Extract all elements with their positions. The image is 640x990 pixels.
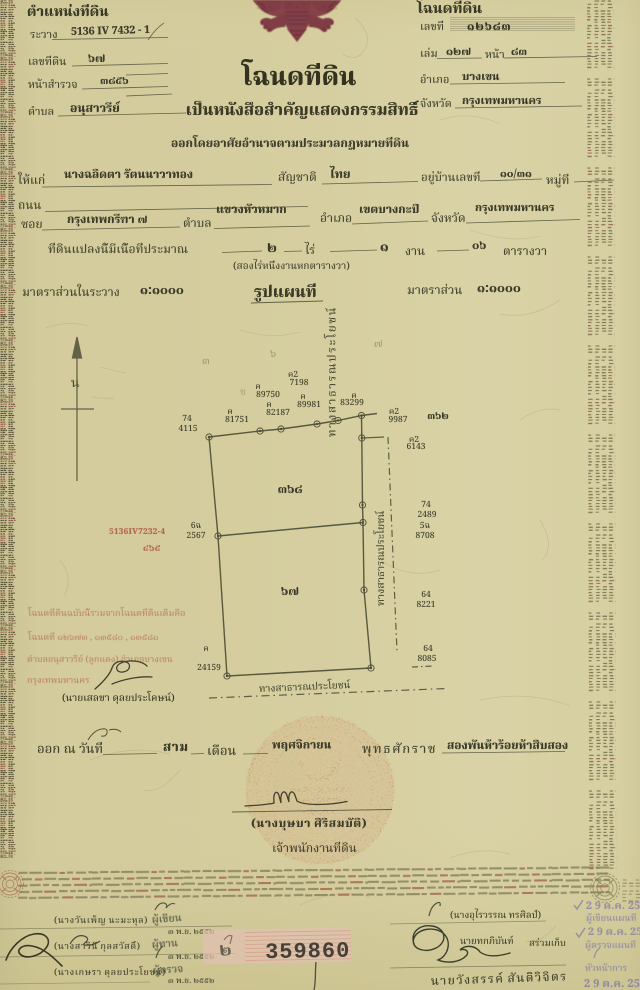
svg-text:359860: 359860: [265, 939, 351, 965]
